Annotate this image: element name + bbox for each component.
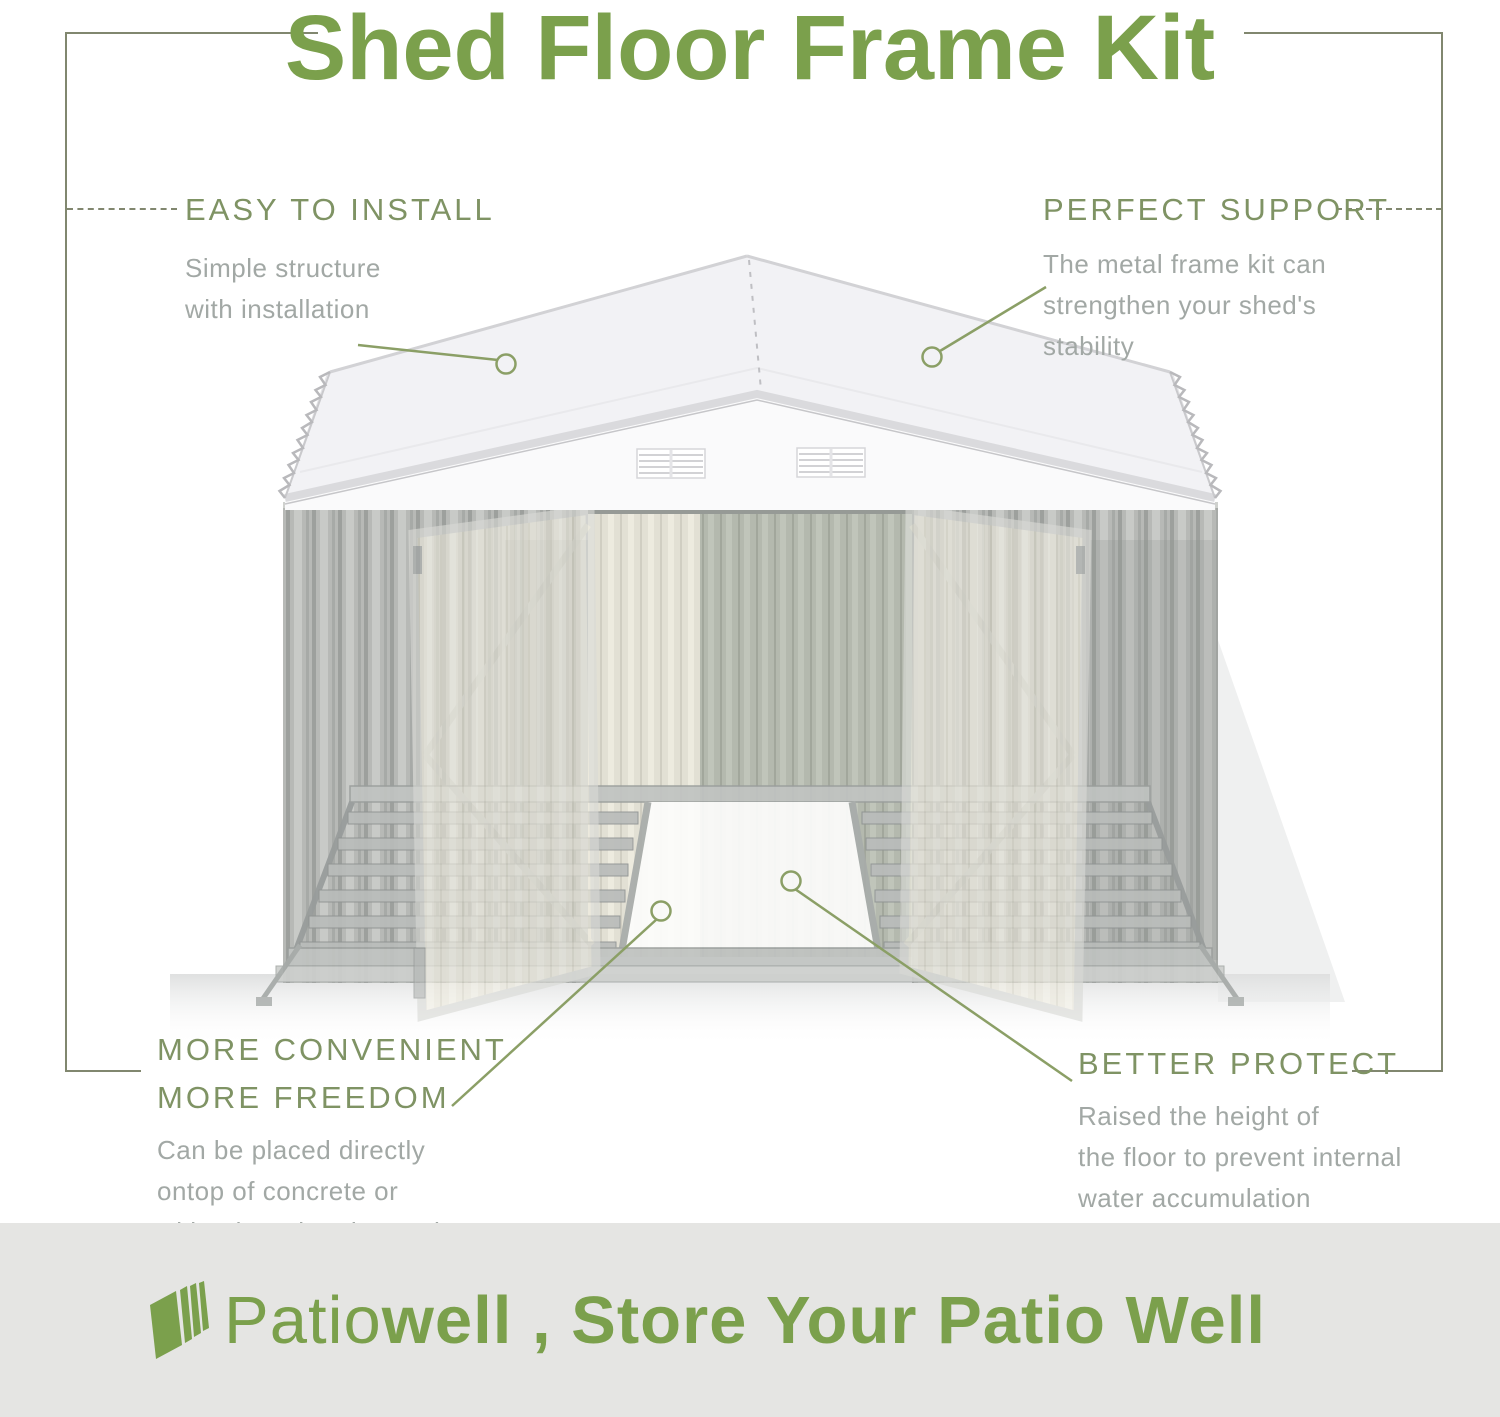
dashed-connector-left bbox=[67, 208, 177, 210]
footer-text: Patiowell , Store Your Patio Well bbox=[224, 1282, 1266, 1359]
footer-banner: Patiowell , Store Your Patio Well bbox=[0, 1223, 1500, 1417]
door-right bbox=[904, 510, 1087, 1016]
frame-top-left-line bbox=[65, 32, 318, 34]
callout-perfect-support-body: The metal frame kit can strengthen your … bbox=[1043, 244, 1390, 367]
callout-more-convenient: MORE CONVENIENT MORE FREEDOM Can be plac… bbox=[157, 1026, 507, 1253]
callout-better-protect-body: Raised the height of the floor to preven… bbox=[1078, 1096, 1402, 1219]
callout-better-protect-heading: BETTER PROTECT bbox=[1078, 1040, 1402, 1088]
callout-easy-install-body: Simple structure with installation bbox=[185, 248, 495, 330]
door-right-handle bbox=[1076, 546, 1085, 574]
callout-easy-install-heading: EASY TO INSTALL bbox=[185, 186, 495, 234]
brand-name-light: Patio bbox=[224, 1283, 382, 1358]
gable-vent-right bbox=[797, 448, 865, 477]
frame-right-line bbox=[1441, 32, 1443, 1072]
callout-better-protect: BETTER PROTECT Raised the height of the … bbox=[1078, 1040, 1402, 1219]
brand-name-bold: well bbox=[382, 1283, 513, 1358]
door-left-latch bbox=[414, 948, 425, 998]
callout-more-convenient-heading: MORE CONVENIENT MORE FREEDOM bbox=[157, 1026, 507, 1122]
door-left bbox=[413, 510, 596, 1016]
frame-bottom-left-corner bbox=[65, 1070, 141, 1072]
floor-frame-kit bbox=[256, 786, 1244, 1006]
page-title: Shed Floor Frame Kit bbox=[285, 0, 1215, 101]
page: Shed Floor Frame Kit bbox=[0, 0, 1500, 1417]
frame-left-line bbox=[65, 32, 67, 1072]
gable-vent-left bbox=[637, 449, 705, 478]
frame-top-right-line bbox=[1244, 32, 1443, 34]
door-left-handle bbox=[413, 546, 422, 574]
callout-easy-install: EASY TO INSTALL Simple structure with in… bbox=[185, 186, 495, 330]
footer-tagline: , Store Your Patio Well bbox=[512, 1283, 1266, 1358]
patiowell-logo-icon bbox=[148, 1281, 210, 1359]
callout-perfect-support: PERFECT SUPPORT The metal frame kit can … bbox=[1043, 186, 1390, 367]
callout-perfect-support-heading: PERFECT SUPPORT bbox=[1043, 186, 1390, 234]
